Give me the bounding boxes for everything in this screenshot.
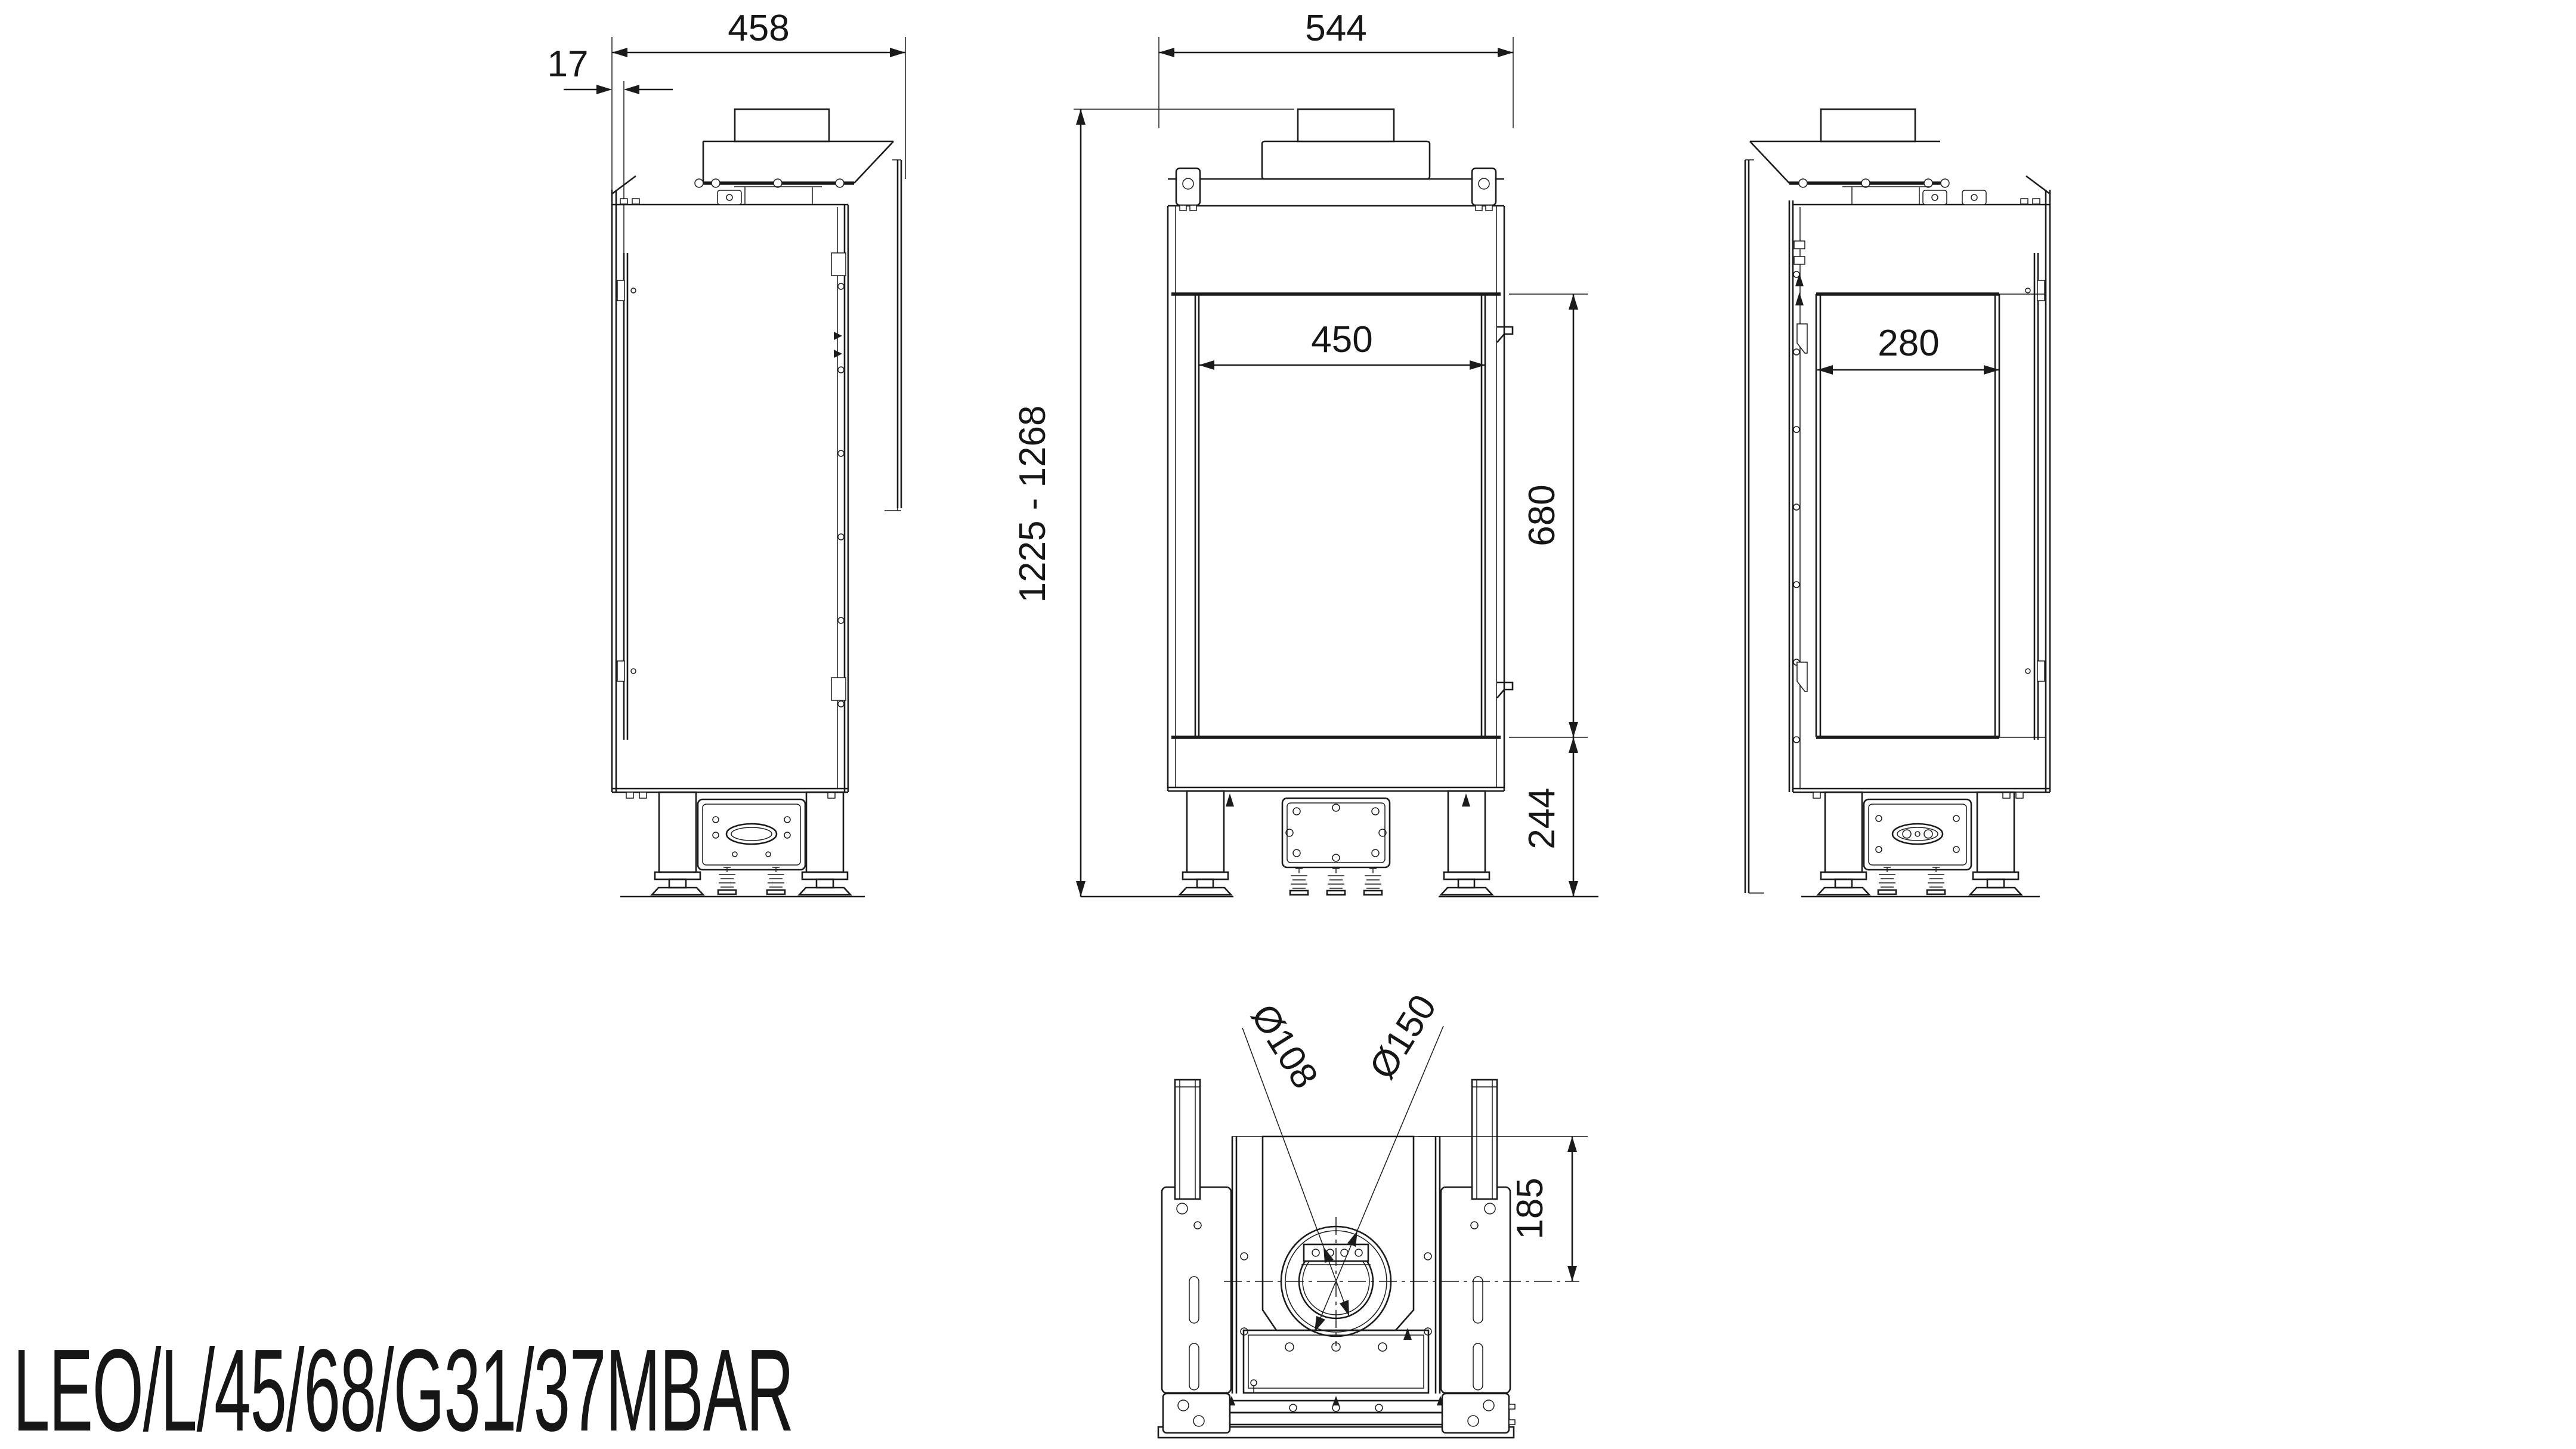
dim-label-height-range: 1225 - 1268 [1012, 406, 1053, 603]
drawing-canvas: 458 17 [0, 0, 2576, 1449]
technical-drawing-page: 458 17 [0, 0, 2576, 1449]
dim-label-glass-280: 280 [1878, 323, 1939, 364]
dim-label-glass-450: 450 [1311, 319, 1372, 360]
dim-label-offset-185: 185 [1510, 1178, 1551, 1239]
model-title: LEO/L/45/68/G31/37MBAR [13, 1325, 793, 1449]
dim-label-glass-680: 680 [1522, 484, 1563, 546]
dim-label-width-544: 544 [1305, 8, 1366, 49]
dim-label-base-244: 244 [1522, 787, 1563, 849]
dim-label-depth-458: 458 [728, 8, 789, 49]
flue-collar-side-left [1821, 109, 1915, 141]
flue-collar-side-right [735, 109, 829, 141]
dim-label-offset-17: 17 [548, 44, 589, 85]
